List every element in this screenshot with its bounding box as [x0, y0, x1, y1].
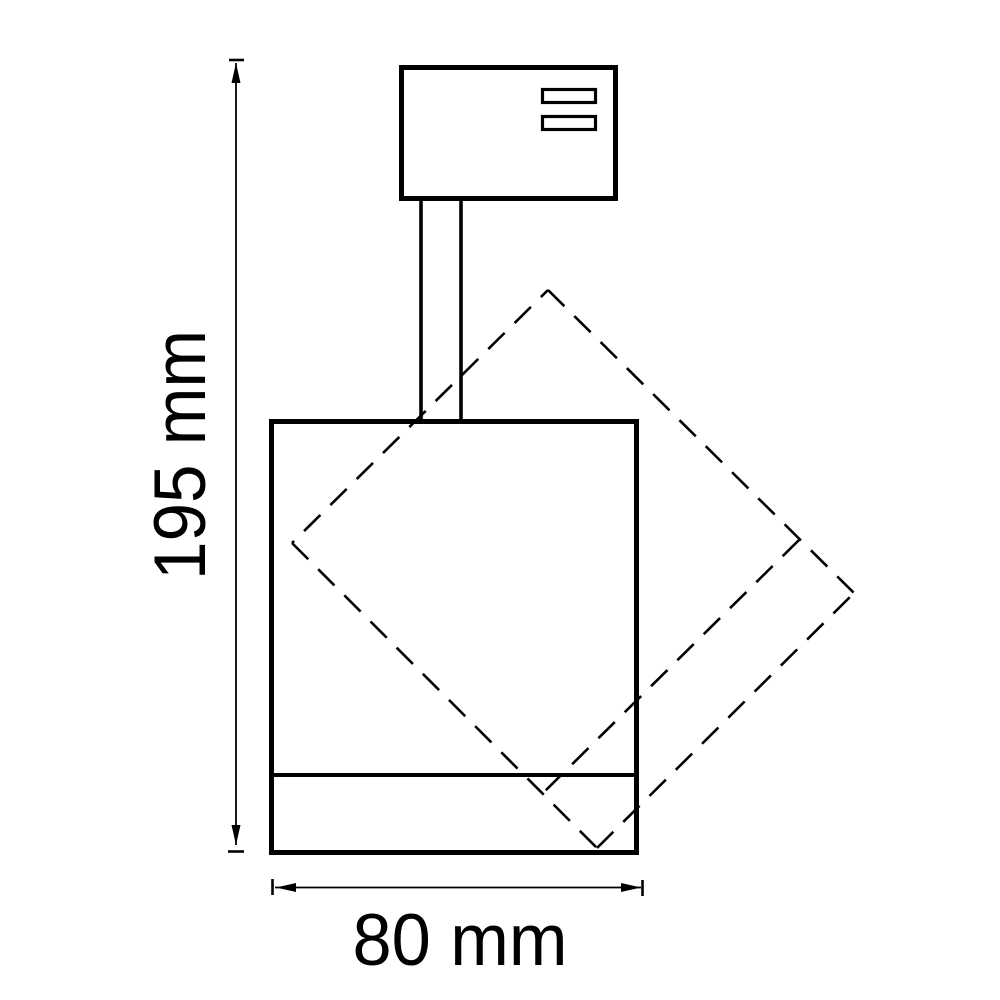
svg-text:195 mm: 195 mm — [140, 330, 221, 580]
svg-text:80 mm: 80 mm — [353, 900, 568, 981]
